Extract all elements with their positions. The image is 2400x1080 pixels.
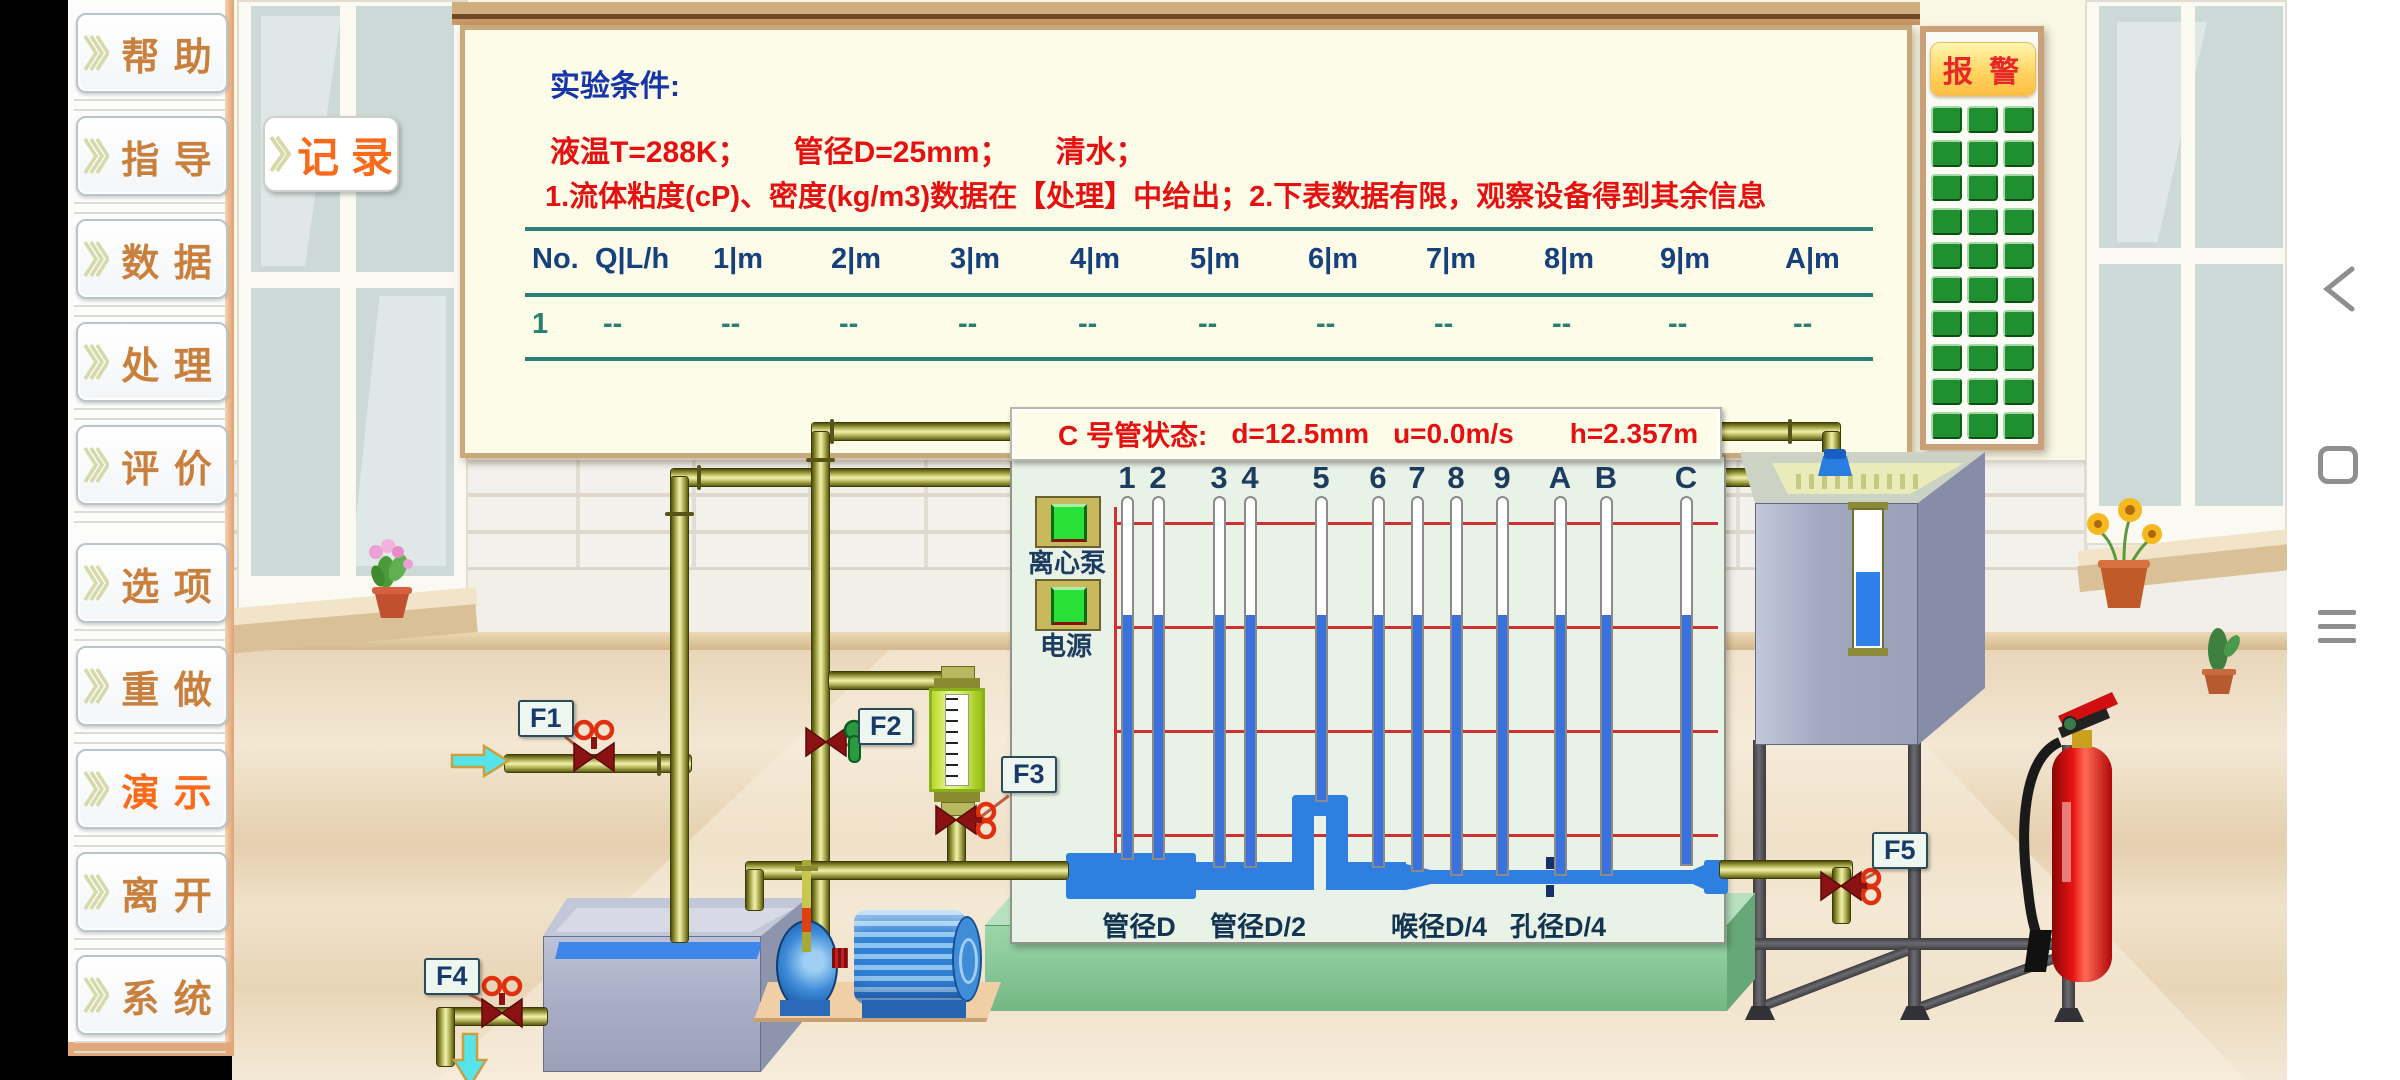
nav-back-icon[interactable]: [2318, 264, 2362, 314]
table-header-cell: 7|m: [1426, 243, 1476, 276]
rotameter-flange: [934, 678, 980, 688]
table-cell: --: [721, 308, 740, 341]
sidebar-item-label: 系 统: [109, 968, 226, 1023]
valve-label: F3: [1001, 756, 1057, 793]
manometer-tube-B[interactable]: [1600, 496, 1613, 876]
chevron-icon: [83, 441, 109, 489]
status-head: h=2.357m: [1570, 418, 1698, 450]
whiteboard-ledge: [452, 2, 1920, 14]
nav-recent-icon[interactable]: [2318, 624, 2356, 629]
alarm-panel: 报 警: [1920, 26, 2044, 450]
table-header-cell: No.: [532, 243, 579, 276]
sidebar-item-label: 演 示: [109, 762, 226, 817]
pink-flower-pot: [364, 538, 420, 622]
orifice-plate: [1546, 885, 1554, 897]
alarm-indicator[interactable]: [1931, 208, 1962, 235]
manometer-panel: 123456789ABC 管径D管径D/2喉径D/4孔径D/4 离心泵 电源: [1010, 455, 1726, 944]
tube-water-column: [1413, 615, 1422, 870]
manometer-tube-5[interactable]: [1315, 496, 1328, 802]
sidebar-separator: [74, 835, 226, 837]
sidebar-separator: [74, 948, 226, 950]
alarm-indicator[interactable]: [1931, 344, 1962, 371]
table-cell: --: [1552, 308, 1571, 341]
tube-label: 8: [1438, 460, 1474, 496]
section-label: 管径D/2: [1193, 905, 1323, 944]
alarm-indicator[interactable]: [1931, 412, 1962, 439]
table-cell: --: [1668, 308, 1687, 341]
sidebar-item-evaluate[interactable]: 评 价: [76, 425, 228, 505]
power-button[interactable]: [1035, 579, 1101, 631]
condition-fluid: 清水；: [1055, 127, 1145, 171]
sidebar-item-label: 评 价: [109, 438, 226, 493]
table-cell: --: [1434, 308, 1453, 341]
tube-label: C: [1668, 460, 1704, 496]
status-title: C 号管状态:: [1058, 414, 1207, 454]
sidebar-separator: [74, 732, 226, 734]
fire-extinguisher: [2000, 672, 2130, 1002]
record-button[interactable]: 记 录: [263, 116, 399, 192]
sidebar-item-data[interactable]: 数 据: [76, 219, 228, 299]
alarm-indicator[interactable]: [2003, 106, 2034, 133]
venturi-leg: [1326, 808, 1348, 890]
chevron-icon: [83, 662, 109, 710]
sidebar-item-process[interactable]: 处 理: [76, 322, 228, 402]
bottom-black-strip: [0, 1056, 232, 1080]
centrifugal-pump-button[interactable]: [1035, 496, 1101, 548]
pump-button-lamp: [1051, 504, 1087, 542]
tube-label: 2: [1140, 460, 1176, 496]
left-window: [237, 0, 468, 610]
manometer-tube-3[interactable]: [1213, 496, 1226, 868]
table-header-cell: 8|m: [1544, 243, 1594, 276]
alarm-indicator[interactable]: [1967, 140, 1998, 167]
section-label: 孔径D/4: [1493, 905, 1623, 944]
table-cell: 1: [532, 308, 548, 341]
yellow-flower-pot: [2086, 490, 2162, 622]
alarm-indicator[interactable]: [2003, 242, 2034, 269]
table-header-cell: 3|m: [950, 243, 1000, 276]
alarm-indicator[interactable]: [2003, 344, 2034, 371]
elevated-tank: [1738, 448, 1988, 748]
alarm-indicator[interactable]: [1967, 412, 1998, 439]
chevron-icon: [83, 132, 109, 180]
alarm-indicator[interactable]: [1967, 208, 1998, 235]
manometer-tube-4[interactable]: [1244, 496, 1257, 868]
alarm-indicator[interactable]: [1967, 276, 1998, 303]
table-rule-mid: [525, 293, 1873, 297]
tank-inlet-nozzle: [1818, 456, 1852, 476]
valve-label: F2: [858, 708, 914, 745]
alarm-indicator[interactable]: [2003, 276, 2034, 303]
table-cell: --: [1078, 308, 1097, 341]
alarm-indicator[interactable]: [1967, 174, 1998, 201]
pump-foot: [780, 1000, 830, 1016]
sidebar-item-system[interactable]: 系 统: [76, 955, 228, 1035]
motor-endcap-ring: [959, 938, 978, 984]
sidebar-item-label: 重 做: [109, 659, 226, 714]
sidebar-separator: [74, 629, 226, 631]
pipe-tank-feed: [1714, 423, 1840, 440]
manometer-tube-C[interactable]: [1680, 496, 1693, 866]
cactus-pot: [2194, 616, 2244, 698]
pipe-top-run-b: [812, 423, 1016, 440]
table-header-cell: 2|m: [831, 243, 881, 276]
tank-frame-leg: [1908, 740, 1921, 1012]
manometer-tube-7[interactable]: [1411, 496, 1424, 872]
tube-water-column: [1682, 615, 1691, 864]
table-cell: --: [1316, 308, 1335, 341]
tube-water-column: [1246, 615, 1255, 866]
alarm-indicator[interactable]: [1967, 378, 1998, 405]
alarm-indicator[interactable]: [1931, 276, 1962, 303]
alarm-indicator[interactable]: [2003, 140, 2034, 167]
sidebar-separator: [74, 1041, 226, 1043]
condition-temp: 液温T=288K；: [550, 127, 748, 171]
alarm-indicator[interactable]: [1967, 310, 1998, 337]
pipe-joint: [657, 751, 661, 776]
valve-label: F1: [518, 700, 574, 737]
app-window: 实验条件: 液温T=288K； 管径D=25mm； 清水； 1.流体粘度(cP)…: [0, 0, 2400, 1080]
experiment-conditions-title: 实验条件:: [550, 61, 680, 105]
pump-coupling: [832, 948, 848, 968]
chevron-icon: [83, 559, 109, 607]
alarm-title: 报 警: [1930, 42, 2036, 96]
sidebar-separator: [74, 845, 226, 847]
table-rule-top: [525, 227, 1873, 231]
table-header-cell: 4|m: [1070, 243, 1120, 276]
manometer-tube-1[interactable]: [1121, 496, 1134, 860]
sidebar-item-demo[interactable]: 演 示: [76, 749, 228, 829]
chevron-icon: [83, 235, 109, 283]
pipe-riser-left: [671, 477, 688, 942]
tube-status-bar: C 号管状态: d=12.5mm u=0.0m/s h=2.357m: [1010, 407, 1722, 461]
motor: [854, 910, 966, 1004]
sidebar-separator: [74, 511, 226, 513]
sidebar-separator: [74, 408, 226, 410]
experiment-note: 1.流体粘度(cP)、密度(kg/m3)数据在【处理】中给出；2.下表数据有限，…: [545, 173, 1766, 215]
table-cell: --: [1793, 308, 1812, 341]
tube-label: 9: [1484, 460, 1520, 496]
level-gauge-stick: [802, 860, 811, 952]
alarm-indicator[interactable]: [2003, 378, 2034, 405]
status-velocity: u=0.0m/s: [1393, 418, 1514, 450]
alarm-indicator[interactable]: [2003, 412, 2034, 439]
sidebar-separator: [74, 212, 226, 214]
alarm-indicator[interactable]: [1931, 310, 1962, 337]
alarm-indicator[interactable]: [1967, 242, 1998, 269]
sidebar-separator: [74, 742, 226, 744]
sidebar-separator: [74, 938, 226, 940]
sidebar-item-label: 处 理: [109, 335, 226, 390]
alarm-indicator[interactable]: [2003, 174, 2034, 201]
alarm-indicator[interactable]: [1931, 242, 1962, 269]
record-button-label: 记 录: [293, 124, 397, 185]
experiment-conditions-line: 液温T=288K； 管径D=25mm； 清水；: [550, 127, 1145, 171]
sidebar-item-guide[interactable]: 指 导: [76, 116, 228, 196]
tube-label: A: [1542, 460, 1578, 496]
tube-water-column: [1317, 615, 1326, 800]
android-nav-bar: [2287, 0, 2400, 1080]
tank-front-face: [1755, 503, 1918, 745]
table-cell: --: [603, 308, 622, 341]
tube-water-column: [1154, 615, 1163, 858]
power-button-lamp: [1051, 587, 1087, 625]
pipe-joint: [830, 419, 834, 444]
sight-glass-water: [1856, 572, 1880, 646]
sidebar-separator: [74, 305, 226, 307]
sidebar-item-label: 指 导: [109, 129, 226, 184]
window-mullion: [2099, 248, 2283, 264]
sidebar-separator: [74, 202, 226, 204]
alarm-indicator[interactable]: [1931, 378, 1962, 405]
valve-label: F5: [1872, 832, 1928, 869]
table-cell: --: [958, 308, 977, 341]
tube-water-column: [1556, 615, 1565, 874]
tube-water-column: [1123, 615, 1132, 858]
pump-button-label: 离心泵: [1012, 543, 1122, 580]
alarm-indicator-grid: [1931, 106, 2034, 439]
nav-recent-icon[interactable]: [2318, 638, 2356, 643]
reservoir-water: [555, 942, 763, 959]
alarm-indicator[interactable]: [1931, 174, 1962, 201]
sidebar-item-leave[interactable]: 离 开: [76, 852, 228, 932]
table-header-cell: Q|L/h: [595, 243, 669, 276]
sidebar-separator: [74, 639, 226, 641]
chevron-icon: [83, 29, 109, 77]
tube-label: 4: [1232, 460, 1268, 496]
motor-base: [862, 1000, 966, 1018]
tank-top-ripple: [1796, 474, 1922, 489]
tube-water-column: [1215, 615, 1224, 866]
valve-label: F4: [424, 958, 480, 995]
tank-inlet-cap: [1824, 449, 1846, 459]
window-mullion: [340, 6, 356, 576]
chevron-icon: [269, 131, 293, 177]
sight-glass-cap: [1848, 648, 1888, 656]
sidebar-item-help[interactable]: 帮 助: [76, 13, 228, 93]
whiteboard: 实验条件: 液温T=288K； 管径D=25mm； 清水； 1.流体粘度(cP)…: [460, 25, 1912, 458]
alarm-indicator[interactable]: [1931, 140, 1962, 167]
orifice-plate: [1546, 857, 1554, 869]
status-diameter: d=12.5mm: [1231, 418, 1369, 450]
level-gauge-crossbar: [795, 866, 818, 871]
tube-label: 7: [1399, 460, 1435, 496]
alarm-indicator[interactable]: [2003, 208, 2034, 235]
tube-water-column: [1602, 615, 1611, 874]
right-window: [2085, 0, 2287, 545]
valve-f4[interactable]: [478, 975, 548, 1040]
condition-diameter: 管径D=25mm；: [794, 127, 1010, 171]
valve-f1[interactable]: [570, 719, 640, 784]
pipe-joint: [665, 512, 694, 516]
left-black-strip: [0, 0, 68, 1080]
table-header-cell: 1|m: [713, 243, 763, 276]
table-header-cell: 6|m: [1308, 243, 1358, 276]
manometer-tube-2[interactable]: [1152, 496, 1165, 860]
manometer-tube-A[interactable]: [1554, 496, 1567, 876]
alarm-indicator[interactable]: [2003, 310, 2034, 337]
sidebar-item-redo[interactable]: 重 做: [76, 646, 228, 726]
sidebar-item-label: 帮 助: [109, 26, 226, 81]
alarm-indicator[interactable]: [1931, 106, 1962, 133]
nav-recent-icon[interactable]: [2318, 610, 2356, 615]
tube-water-column: [1498, 615, 1507, 874]
manometer-tube-6[interactable]: [1372, 496, 1385, 868]
sidebar-separator: [74, 1051, 226, 1053]
sidebar-separator: [74, 109, 226, 111]
sidebar-item-options[interactable]: 选 项: [76, 543, 228, 623]
sidebar-item-label: 数 据: [109, 232, 226, 287]
table-cell: --: [839, 308, 858, 341]
tube-water-column: [1452, 615, 1461, 874]
inlet-flow-arrow: [448, 742, 512, 780]
table-cell: --: [1198, 308, 1217, 341]
tube-label: B: [1588, 460, 1624, 496]
alarm-indicator[interactable]: [1967, 106, 1998, 133]
tube-label: 5: [1303, 460, 1339, 496]
table-data-row: 1----------------------: [465, 308, 1907, 348]
manometer-tube-9[interactable]: [1496, 496, 1509, 876]
sidebar-item-label: 选 项: [109, 556, 226, 611]
window-mullion: [251, 272, 454, 288]
tube-water-column: [1374, 615, 1383, 866]
table-header-cell: 9|m: [1660, 243, 1710, 276]
chevron-icon: [83, 868, 109, 916]
sidebar-separator: [74, 521, 226, 523]
tube-label: 6: [1360, 460, 1396, 496]
glass-streak: [351, 296, 446, 566]
sidebar-separator: [74, 418, 226, 420]
table-rule-bottom: [525, 357, 1873, 361]
table-header-cell: 5|m: [1190, 243, 1240, 276]
venturi-leg: [1292, 808, 1314, 890]
pipe-joint: [806, 458, 835, 462]
chevron-icon: [83, 338, 109, 386]
manometer-tube-8[interactable]: [1450, 496, 1463, 876]
rotameter-scale-ticks: [946, 698, 958, 782]
sidebar-bottom-border: [68, 1042, 232, 1056]
pipe-joint: [1788, 419, 1792, 444]
pipe-joint: [697, 465, 701, 490]
valve-f3[interactable]: [932, 782, 1002, 847]
sidebar-item-label: 离 开: [109, 865, 226, 920]
pipe-suction: [746, 870, 763, 910]
alarm-indicator[interactable]: [1967, 344, 1998, 371]
chevron-icon: [83, 971, 109, 1019]
nav-home-icon[interactable]: [2318, 446, 2358, 484]
chevron-icon: [83, 765, 109, 813]
table-header-row: No.Q|L/h1|m2|m3|m4|m5|m6|m7|m8|m9|mA|m: [465, 243, 1907, 283]
table-header-cell: A|m: [1785, 243, 1840, 276]
sidebar-separator: [74, 315, 226, 317]
sidebar-separator: [74, 99, 226, 101]
power-button-label: 电源: [1022, 626, 1110, 663]
section-label: 管径D: [1074, 905, 1204, 944]
section-label: 喉径D/4: [1374, 905, 1504, 944]
pipe-top-run-a: [671, 469, 1016, 486]
